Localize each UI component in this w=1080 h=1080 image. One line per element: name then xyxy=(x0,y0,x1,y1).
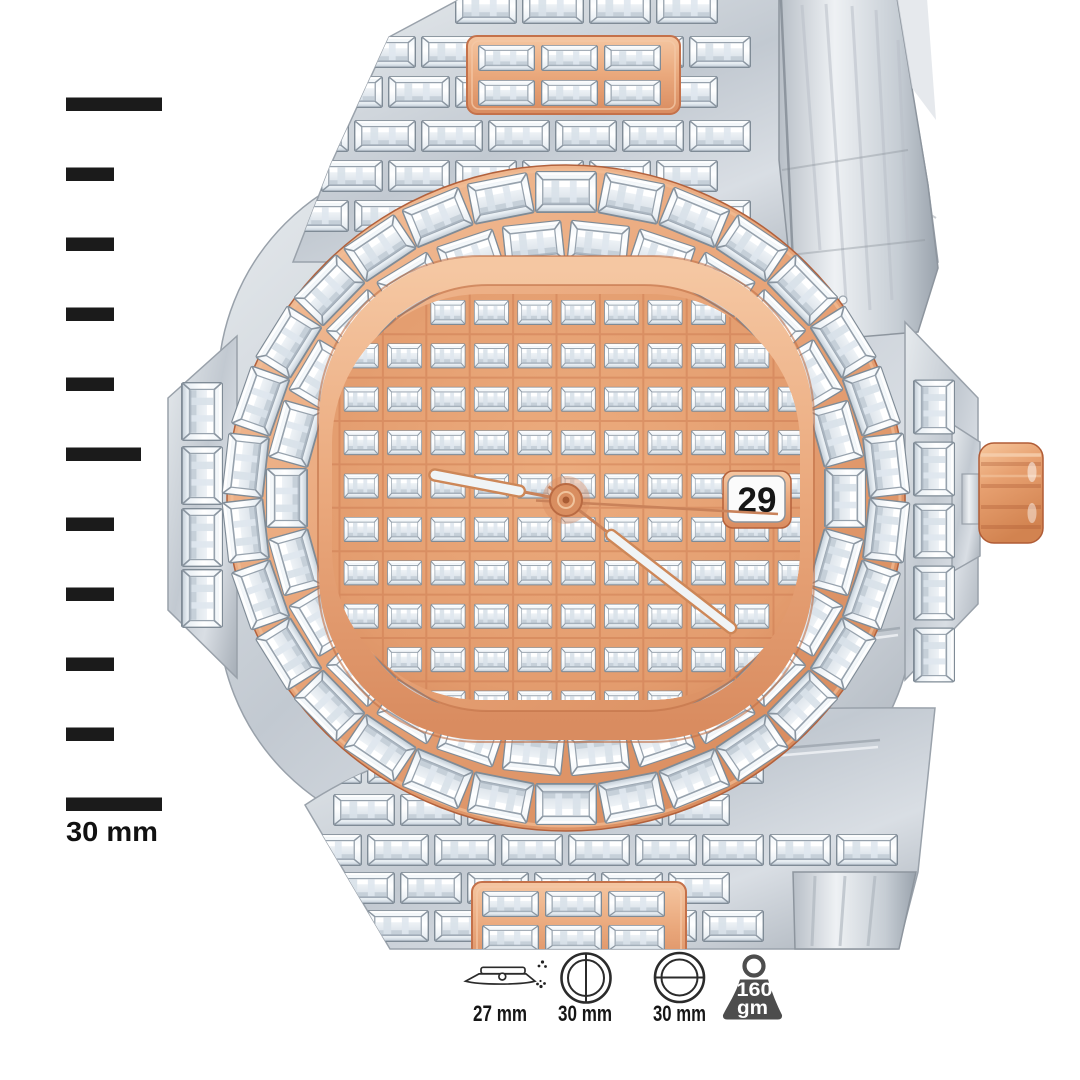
svg-text:gm: gm xyxy=(737,998,768,1019)
svg-text:30 mm: 30 mm xyxy=(558,1001,612,1026)
svg-text:30 mm: 30 mm xyxy=(653,1001,706,1026)
svg-text:30 mm: 30 mm xyxy=(66,816,158,847)
svg-text:27 mm: 27 mm xyxy=(473,1001,527,1026)
